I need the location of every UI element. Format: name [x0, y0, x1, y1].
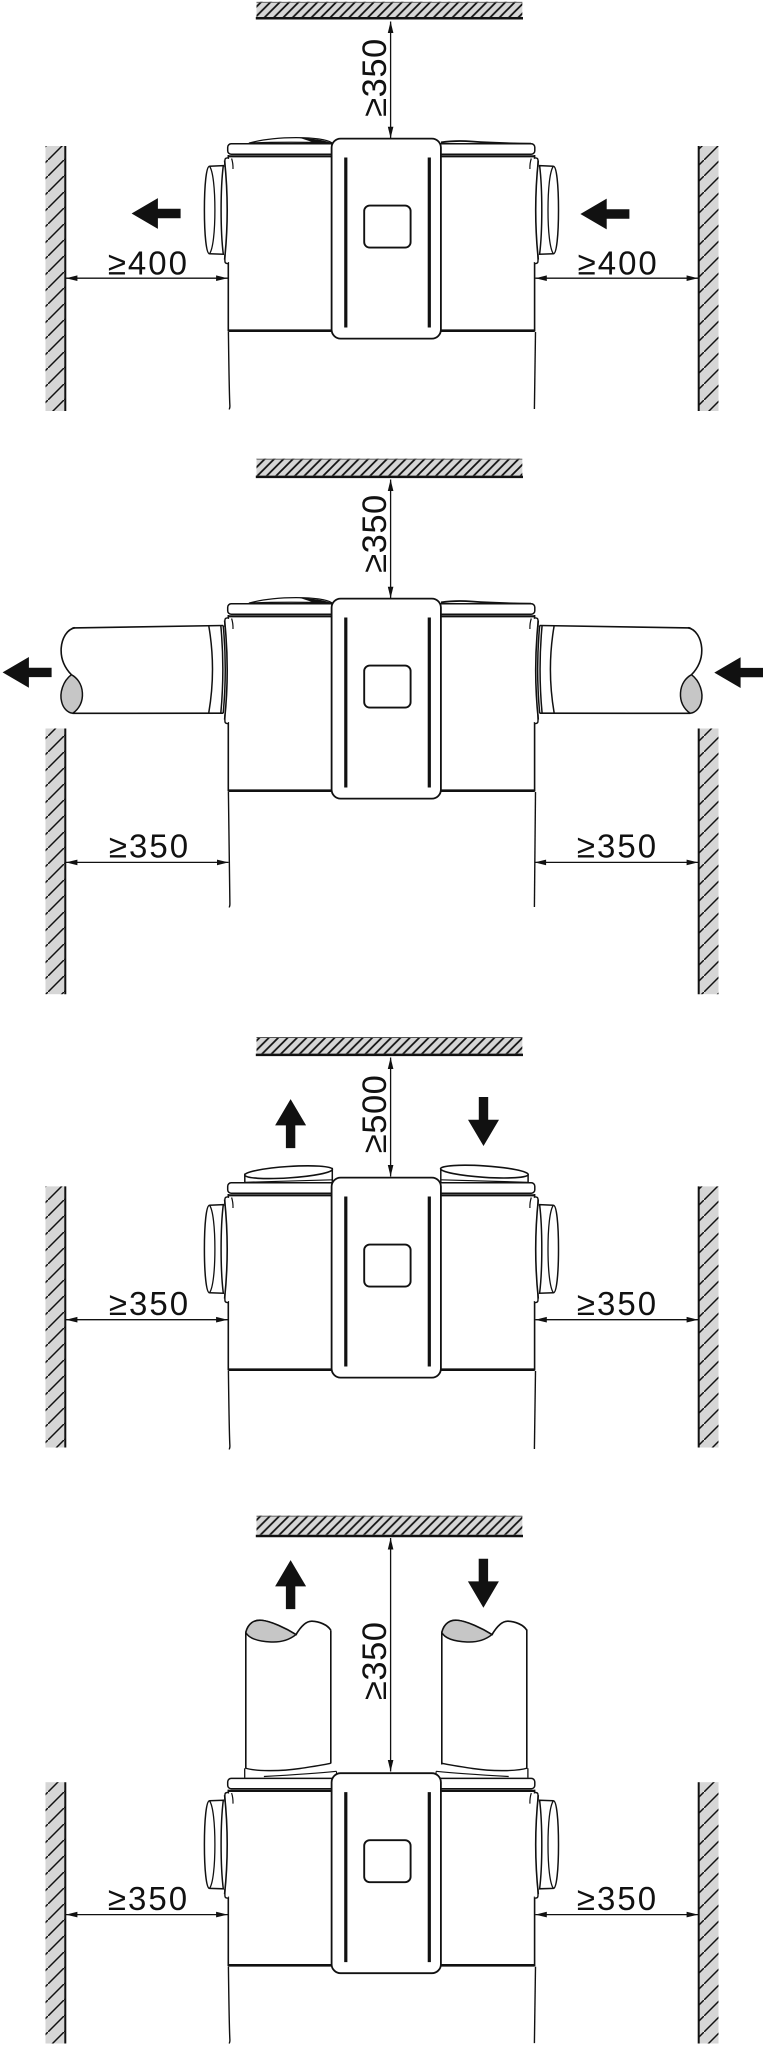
svg-text:≥400: ≥400 [578, 245, 659, 282]
svg-text:≥350: ≥350 [577, 1880, 658, 1917]
svg-text:≥350: ≥350 [356, 38, 394, 117]
svg-text:≥350: ≥350 [109, 828, 190, 865]
svg-text:≥350: ≥350 [109, 1285, 190, 1322]
svg-text:≥400: ≥400 [108, 245, 189, 282]
svg-text:≥350: ≥350 [356, 494, 394, 573]
svg-text:≥350: ≥350 [108, 1880, 189, 1917]
svg-text:≥350: ≥350 [577, 1285, 658, 1322]
svg-text:≥350: ≥350 [577, 828, 658, 865]
svg-text:≥350: ≥350 [356, 1622, 394, 1701]
svg-text:≥500: ≥500 [356, 1075, 394, 1154]
